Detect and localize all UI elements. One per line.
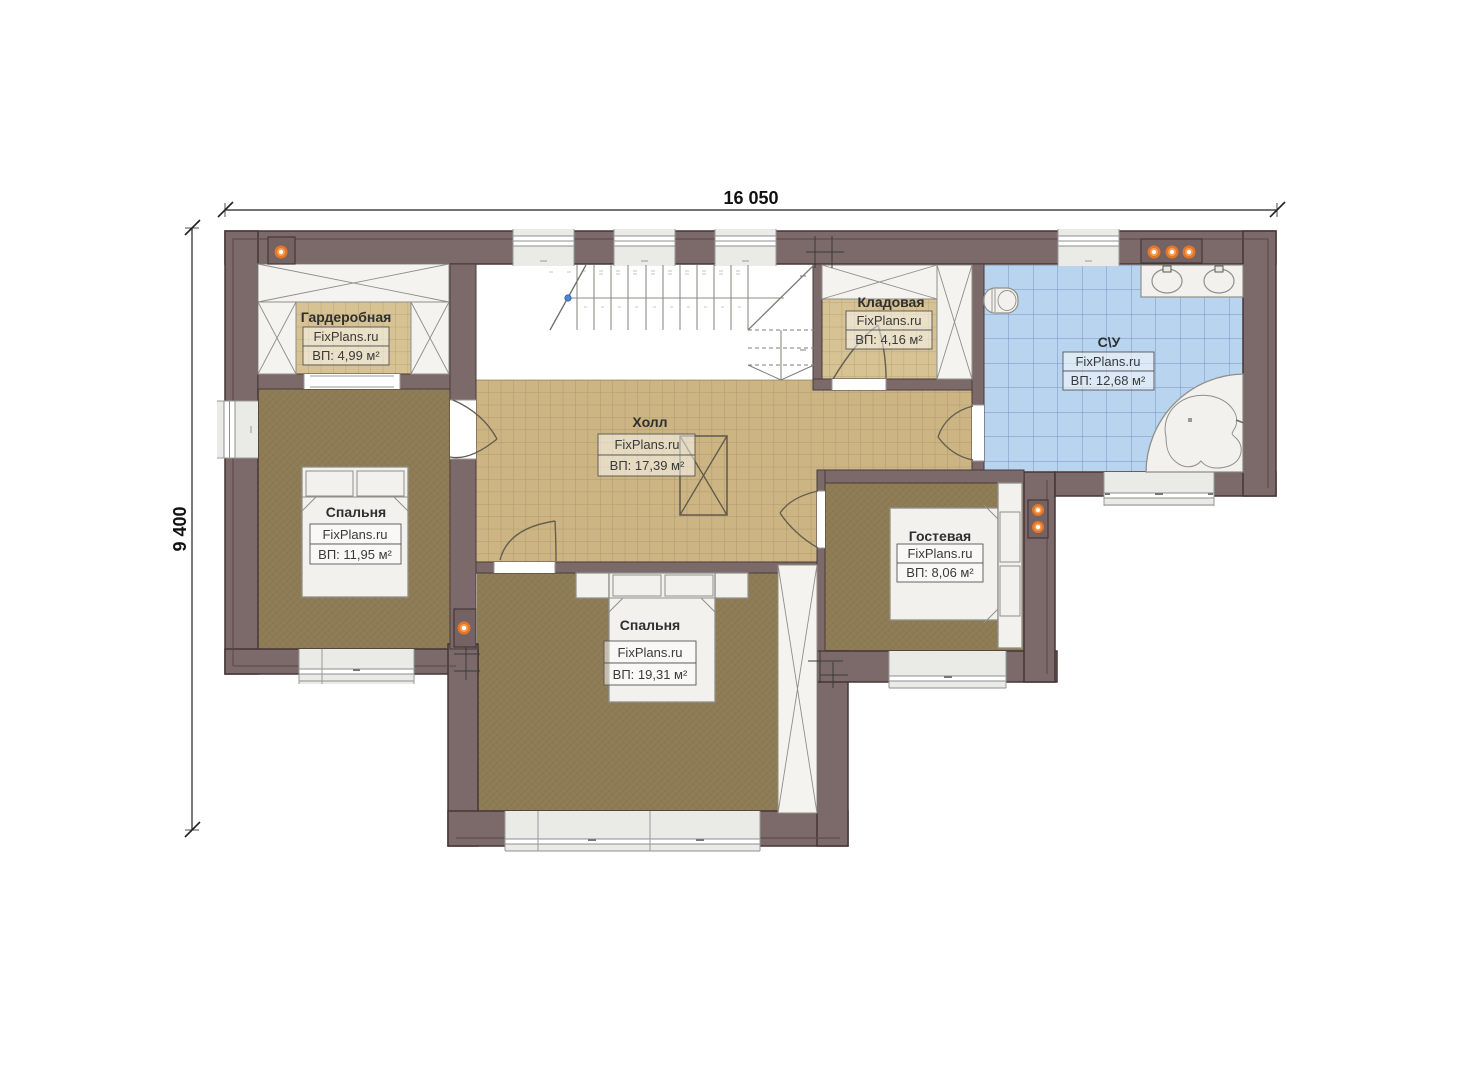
svg-text:ВП: 17,39 м²: ВП: 17,39 м² bbox=[610, 458, 685, 473]
svg-text:ВП: 8,06 м²: ВП: 8,06 м² bbox=[906, 565, 974, 580]
svg-text:ВП: 11,95 м²: ВП: 11,95 м² bbox=[318, 547, 392, 562]
svg-text:FixPlans.ru: FixPlans.ru bbox=[313, 329, 378, 344]
svg-text:Кладовая: Кладовая bbox=[857, 294, 924, 310]
svg-text:FixPlans.ru: FixPlans.ru bbox=[907, 546, 972, 561]
svg-text:9 400: 9 400 bbox=[170, 506, 190, 551]
svg-text:FixPlans.ru: FixPlans.ru bbox=[1075, 354, 1140, 369]
svg-text:ВП: 4,16 м²: ВП: 4,16 м² bbox=[855, 332, 923, 347]
svg-text:Холл: Холл bbox=[632, 414, 667, 430]
svg-text:Спальня: Спальня bbox=[620, 617, 680, 633]
svg-text:FixPlans.ru: FixPlans.ru bbox=[322, 527, 387, 542]
svg-text:Гостевая: Гостевая bbox=[909, 528, 971, 544]
svg-text:Гардеробная: Гардеробная bbox=[301, 309, 392, 325]
svg-text:С\У: С\У bbox=[1098, 334, 1121, 350]
svg-text:FixPlans.ru: FixPlans.ru bbox=[856, 313, 921, 328]
svg-text:FixPlans.ru: FixPlans.ru bbox=[614, 437, 679, 452]
svg-text:ВП: 4,99 м²: ВП: 4,99 м² bbox=[312, 348, 380, 363]
svg-text:16 050: 16 050 bbox=[723, 188, 778, 208]
svg-text:ВП: 19,31 м²: ВП: 19,31 м² bbox=[613, 667, 688, 682]
svg-text:ВП: 12,68 м²: ВП: 12,68 м² bbox=[1071, 373, 1146, 388]
svg-text:FixPlans.ru: FixPlans.ru bbox=[617, 645, 682, 660]
svg-text:Спальня: Спальня bbox=[326, 504, 386, 520]
